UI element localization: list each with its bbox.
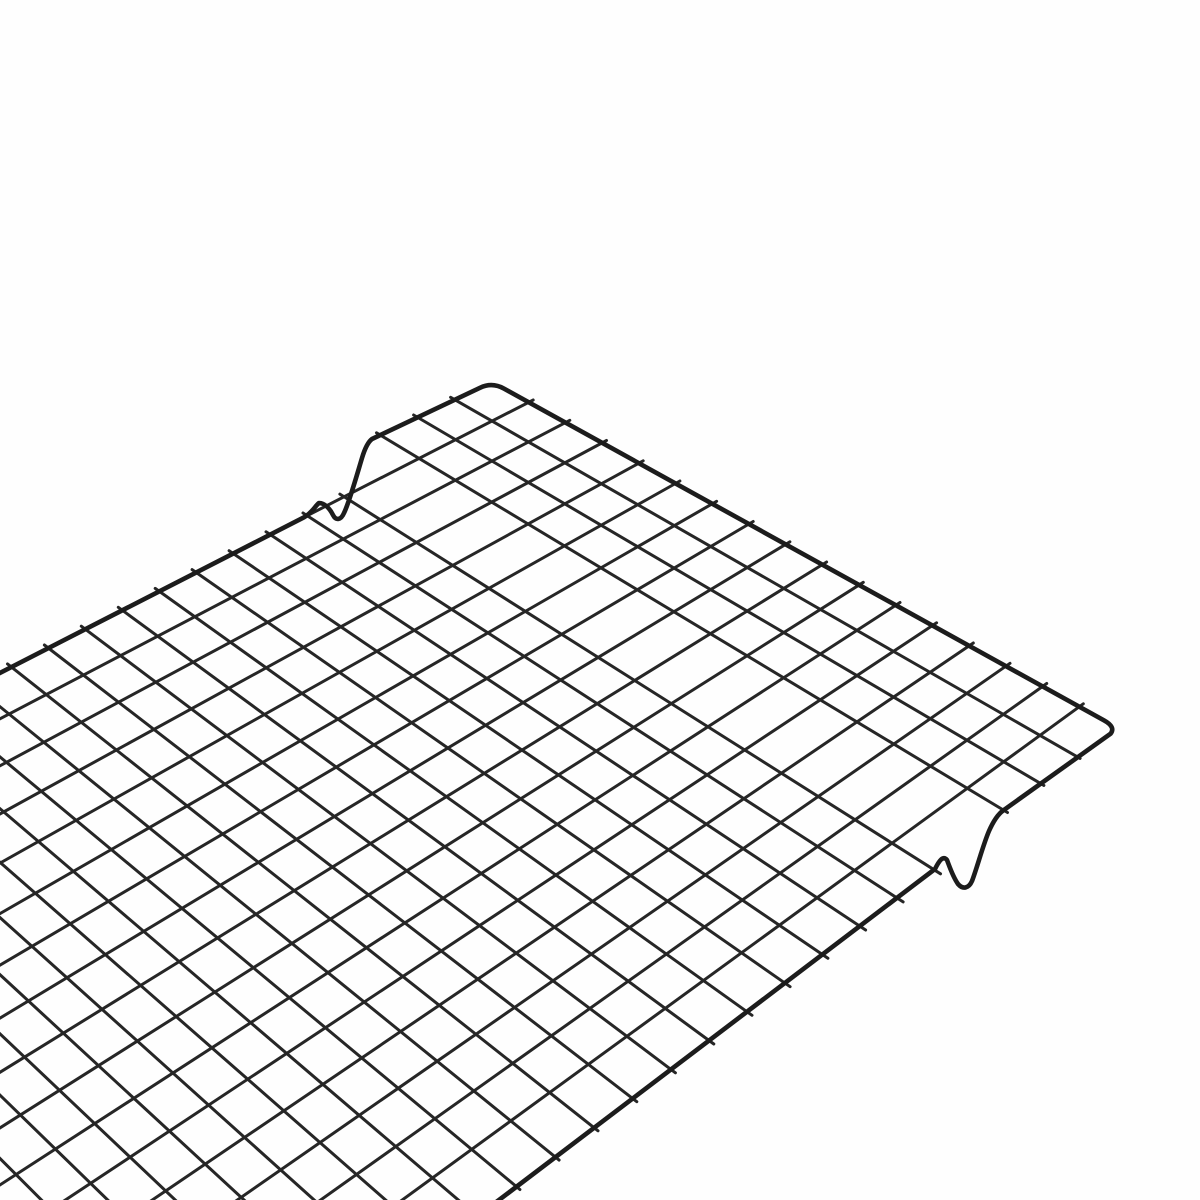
- grid-row-wires: [0, 400, 1083, 1200]
- grid-row-wire: [0, 663, 1010, 1200]
- grid-column-wire: [0, 777, 362, 1200]
- grid-column-wire: [0, 739, 441, 1200]
- grid-column-wire: [0, 721, 481, 1200]
- grid-column-wire: [340, 494, 941, 874]
- grid-column-wire: [81, 626, 675, 1073]
- grid-column-wire: [451, 397, 1081, 758]
- grid-column-wire: [0, 702, 520, 1190]
- grid-row-wire: [0, 522, 753, 1200]
- cooling-rack-svg: [0, 0, 1200, 1200]
- grid-column-wire: [0, 834, 241, 1200]
- grid-column-wire: [0, 796, 321, 1200]
- grid-column-wire: [8, 664, 599, 1131]
- cooling-rack: [0, 385, 1112, 1200]
- grid-row-wire: [0, 441, 607, 1200]
- grid-column-wire: [44, 645, 636, 1102]
- product-photo-canvas: Product photo of a black nonstick metal …: [0, 0, 1200, 1200]
